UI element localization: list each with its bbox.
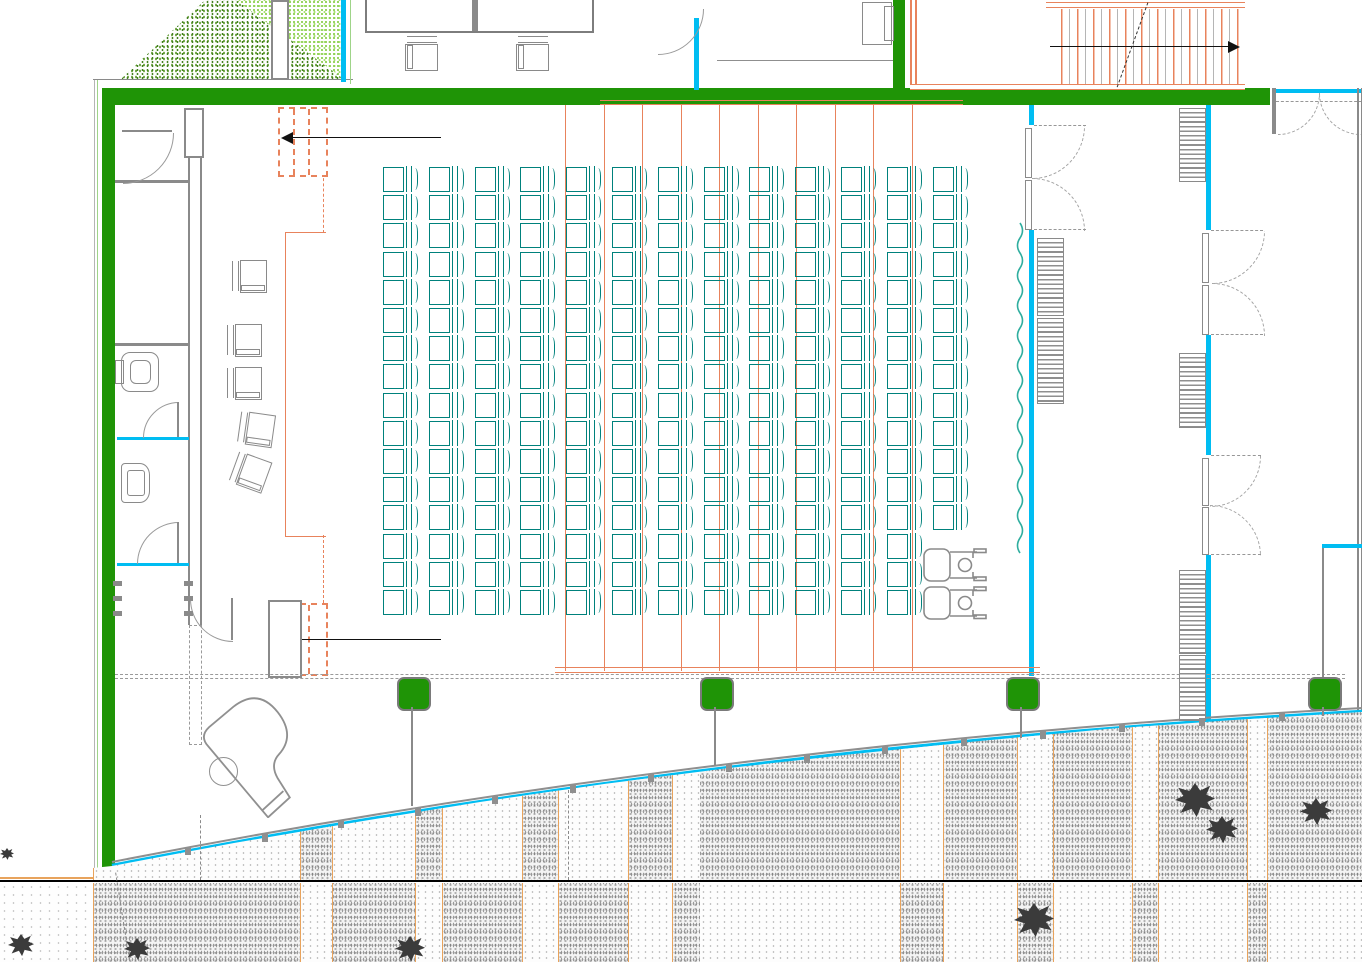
auditorium-seat xyxy=(749,504,785,531)
glass-wall-grass-edge xyxy=(341,0,346,82)
auditorium-seat xyxy=(612,194,648,221)
sidewalk-lower xyxy=(0,883,1362,962)
auditorium-seat xyxy=(887,335,923,362)
auditorium-seat xyxy=(795,279,831,306)
auditorium-seat xyxy=(933,392,969,419)
wall-right-outer xyxy=(1357,88,1359,712)
auditorium-seat xyxy=(887,561,923,588)
auditorium-seat xyxy=(658,222,694,249)
auditorium-seat xyxy=(658,561,694,588)
auditorium-seat xyxy=(841,251,877,278)
auditorium-seat xyxy=(841,420,877,447)
auditorium-seat xyxy=(429,561,465,588)
stair-arrow-line xyxy=(1050,46,1235,47)
auditorium-seat xyxy=(658,251,694,278)
pavement-band xyxy=(1017,700,1052,880)
stage-stair-top-arrowhead xyxy=(281,132,293,144)
auditorium-seat xyxy=(383,392,419,419)
auditorium-seat xyxy=(933,335,969,362)
auditorium-seat xyxy=(475,166,511,193)
auditorium-seat xyxy=(383,561,419,588)
pavement-divider xyxy=(900,883,901,962)
auditorium-seat xyxy=(658,476,694,503)
office-chair xyxy=(232,259,268,293)
office-chair xyxy=(237,410,277,449)
auditorium-seat xyxy=(429,307,465,334)
stair-stringer-left xyxy=(910,0,912,90)
pavement-divider xyxy=(522,883,523,962)
facade-mullion xyxy=(1279,713,1285,721)
pavement-divider xyxy=(1017,700,1018,880)
stair-arrow-head xyxy=(1228,41,1240,53)
radiator xyxy=(1037,318,1064,404)
stair-rail-bottom xyxy=(910,84,1245,90)
auditorium-seat xyxy=(520,392,556,419)
auditorium-seat xyxy=(566,279,602,306)
auditorium-seat xyxy=(841,307,877,334)
pavement-divider xyxy=(332,700,333,880)
auditorium-seat xyxy=(841,194,877,221)
auditorium-seat xyxy=(429,363,465,390)
wc-wall-pier xyxy=(184,108,204,158)
office-chair xyxy=(228,450,273,494)
auditorium-seat xyxy=(887,166,923,193)
auditorium-seat xyxy=(887,251,923,278)
pavement-divider xyxy=(558,700,559,880)
wc-wall-inner-2 xyxy=(200,108,202,625)
door-leaf-corridor-bottom xyxy=(231,598,233,640)
auditorium-seat xyxy=(887,222,923,249)
auditorium-seat xyxy=(383,222,419,249)
pavement-divider xyxy=(522,700,523,880)
facade-mullion xyxy=(415,808,421,816)
auditorium-seat xyxy=(475,279,511,306)
auditorium-seat xyxy=(612,307,648,334)
radiator xyxy=(1037,238,1064,316)
auditorium-seat xyxy=(566,420,602,447)
wall-pier-stage xyxy=(268,600,302,678)
pavement-divider xyxy=(1053,700,1054,880)
auditorium-seat xyxy=(383,335,419,362)
auditorium-seat xyxy=(658,335,694,362)
auditorium-seat xyxy=(887,279,923,306)
stage-stair-top-arrow xyxy=(286,137,441,138)
auditorium-seat xyxy=(704,307,740,334)
auditorium-seat xyxy=(566,222,602,249)
door-leaf-b1 xyxy=(1202,233,1209,283)
auditorium-seat xyxy=(612,279,648,306)
auditorium-seat xyxy=(749,476,785,503)
auditorium-seat xyxy=(749,307,785,334)
radiator xyxy=(1179,570,1206,654)
auditorium-seat xyxy=(566,194,602,221)
auditorium-seat xyxy=(933,222,969,249)
auditorium-seat xyxy=(566,561,602,588)
auditorium-seat xyxy=(429,533,465,560)
column-stem xyxy=(714,707,716,766)
pavement-divider xyxy=(558,883,559,962)
auditorium-seat xyxy=(704,589,740,616)
auditorium-seat xyxy=(475,448,511,475)
auditorium-seat xyxy=(749,589,785,616)
glass-wall-a-upper xyxy=(1029,105,1034,125)
pavement-divider xyxy=(900,700,901,880)
door-box-b2-bottom xyxy=(1211,554,1261,555)
wc-cross-wall-2 xyxy=(115,343,188,346)
wall-tick xyxy=(113,581,122,586)
pavement-divider xyxy=(672,700,673,880)
auditorium-seat xyxy=(887,589,923,616)
door-box-a-top xyxy=(1034,125,1086,126)
auditorium-seat xyxy=(749,166,785,193)
auditorium-seat xyxy=(383,279,419,306)
auditorium-seat xyxy=(475,251,511,278)
door-leaf-b3 xyxy=(1202,458,1209,506)
wall-pier-top xyxy=(271,0,289,80)
pavement-divider xyxy=(442,700,443,880)
site-line-vertical xyxy=(350,0,351,84)
facade-drop-dash-2 xyxy=(568,790,570,880)
auditorium-seat xyxy=(383,589,419,616)
auditorium-seat xyxy=(475,222,511,249)
beam-horizontal-top xyxy=(600,100,963,105)
stair-top-right xyxy=(910,0,1247,92)
piano-stool xyxy=(209,757,238,786)
facade-mullion xyxy=(1199,718,1205,726)
sidewalk-black-line xyxy=(0,880,1362,882)
auditorium-seat xyxy=(841,533,877,560)
auditorium-seat xyxy=(933,476,969,503)
stage-outline xyxy=(285,232,326,537)
door-box-b1-top xyxy=(1211,230,1263,231)
auditorium-seat xyxy=(566,251,602,278)
auditorium-seat xyxy=(933,504,969,531)
auditorium-seat xyxy=(704,194,740,221)
door-arc-top-hall xyxy=(612,0,704,55)
auditorium-seat xyxy=(475,476,511,503)
pavement-divider xyxy=(442,883,443,962)
auditorium-seat xyxy=(933,279,969,306)
auditorium-seat xyxy=(887,476,923,503)
wheelchair-symbol-1 xyxy=(922,545,990,585)
facade-mullion xyxy=(1119,724,1125,732)
floor-plan-canvas xyxy=(0,0,1362,962)
pavement-divider xyxy=(1017,883,1018,962)
stage-edge-dash-lower xyxy=(323,535,325,603)
door-leaf-a2 xyxy=(1025,180,1032,230)
pavement-divider xyxy=(1158,700,1159,880)
auditorium-seat xyxy=(612,420,648,447)
door-leaf-wc2 xyxy=(177,522,179,563)
meeting-table-divider xyxy=(472,0,478,31)
auditorium-seat xyxy=(749,335,785,362)
auditorium-seat xyxy=(612,476,648,503)
pavement-divider xyxy=(628,883,629,962)
auditorium-seat xyxy=(795,166,831,193)
pavement-divider xyxy=(1053,883,1054,962)
auditorium-seat xyxy=(520,533,556,560)
auditorium-seat xyxy=(841,561,877,588)
meeting-table xyxy=(365,0,594,33)
pavement-divider xyxy=(1267,883,1268,962)
pavement-band xyxy=(522,883,558,962)
door-leaf-corridor-top xyxy=(122,130,172,132)
pavement-divider xyxy=(93,883,94,962)
auditorium-seat xyxy=(475,533,511,560)
auditorium-seat xyxy=(841,392,877,419)
auditorium-seat xyxy=(704,561,740,588)
auditorium-seat xyxy=(933,363,969,390)
stage-stair-top-tread xyxy=(293,109,296,175)
auditorium-seat xyxy=(566,335,602,362)
auditorium-seat xyxy=(612,533,648,560)
auditorium-seat xyxy=(749,533,785,560)
auditorium-seat xyxy=(795,561,831,588)
auditorium-seat xyxy=(749,279,785,306)
auditorium-seat xyxy=(749,448,785,475)
auditorium-seat xyxy=(887,363,923,390)
auditorium-seat xyxy=(887,194,923,221)
auditorium-seat xyxy=(612,504,648,531)
stage-stair-bot-arrow xyxy=(286,639,441,640)
auditorium-seat xyxy=(795,533,831,560)
pavement-divider xyxy=(1267,700,1268,880)
auditorium-seat xyxy=(658,279,694,306)
auditorium-seat xyxy=(795,363,831,390)
wc-wall-inner-1 xyxy=(188,108,190,625)
auditorium-seat xyxy=(429,194,465,221)
auditorium-seat xyxy=(566,533,602,560)
auditorium-seat xyxy=(933,194,969,221)
facade-mullion xyxy=(492,796,498,804)
wall-stub-top-green xyxy=(893,0,905,88)
sidewalk-orange-edge xyxy=(0,877,93,879)
facade-mullion xyxy=(1040,731,1046,739)
auditorium-seat xyxy=(704,392,740,419)
tree-symbol xyxy=(0,848,14,860)
auditorium-seat xyxy=(429,476,465,503)
grand-piano xyxy=(200,688,315,818)
pavement-band xyxy=(628,883,672,962)
glass-wall-b-1 xyxy=(1206,105,1211,230)
auditorium-seat xyxy=(795,251,831,278)
auditorium-seat xyxy=(475,561,511,588)
auditorium-seat xyxy=(841,279,877,306)
pavement-divider xyxy=(1247,883,1248,962)
auditorium-seat xyxy=(658,307,694,334)
auditorium-seat xyxy=(841,589,877,616)
auditorium-seat xyxy=(429,279,465,306)
auditorium-seat xyxy=(749,222,785,249)
auditorium-seat xyxy=(429,448,465,475)
door-leaf-b4 xyxy=(1202,507,1209,555)
auditorium-seat xyxy=(887,392,923,419)
auditorium-seat xyxy=(841,363,877,390)
facade-mullion xyxy=(570,785,576,793)
green-column xyxy=(1006,677,1040,711)
pavement-band xyxy=(1132,700,1158,880)
auditorium-seat xyxy=(520,194,556,221)
green-column xyxy=(397,677,431,711)
auditorium-seat xyxy=(612,363,648,390)
toilet-tank xyxy=(115,360,124,384)
auditorium-seat xyxy=(429,420,465,447)
wheelchair-symbol-2 xyxy=(922,583,990,623)
auditorium-seat xyxy=(841,222,877,249)
facade-mullion xyxy=(338,820,344,828)
auditorium-seat xyxy=(749,561,785,588)
auditorium-seat xyxy=(704,420,740,447)
auditorium-seat xyxy=(658,448,694,475)
auditorium-seat xyxy=(658,392,694,419)
pavement-band xyxy=(522,700,558,880)
auditorium-seat xyxy=(520,363,556,390)
auditorium-seat xyxy=(566,392,602,419)
pavement-band xyxy=(628,700,672,880)
auditorium-seat xyxy=(475,307,511,334)
pavement-band xyxy=(1132,883,1158,962)
pavement-divider xyxy=(415,700,416,880)
auditorium-seat xyxy=(383,251,419,278)
auditorium-seat xyxy=(658,194,694,221)
auditorium-seat xyxy=(887,533,923,560)
auditorium-seat xyxy=(566,589,602,616)
auditorium-seat xyxy=(704,166,740,193)
auditorium-seat xyxy=(841,504,877,531)
office-chair xyxy=(227,366,263,400)
auditorium-seat xyxy=(795,222,831,249)
auditorium-seat xyxy=(566,363,602,390)
wall-tick xyxy=(184,581,193,586)
auditorium-seat xyxy=(383,420,419,447)
auditorium-seat xyxy=(520,279,556,306)
office-chair xyxy=(405,36,439,72)
auditorium-seat xyxy=(612,561,648,588)
auditorium-seat xyxy=(841,476,877,503)
pavement-divider xyxy=(332,883,333,962)
auditorium-seat xyxy=(383,194,419,221)
site-line-left-gray xyxy=(94,80,95,878)
auditorium-seat xyxy=(383,448,419,475)
door-arc-b1-upper xyxy=(1159,178,1265,284)
auditorium-seat xyxy=(429,504,465,531)
auditorium-seat xyxy=(795,504,831,531)
auditorium-seat xyxy=(520,448,556,475)
auditorium-seat xyxy=(429,392,465,419)
auditorium-seat xyxy=(475,392,511,419)
toilet-bowl xyxy=(130,360,151,384)
green-column xyxy=(700,677,734,711)
glass-corner-br xyxy=(1322,544,1362,548)
wall-tick xyxy=(184,611,193,616)
auditorium-seat xyxy=(795,307,831,334)
auditorium-seat xyxy=(841,448,877,475)
door-leaf-wc1 xyxy=(177,402,179,437)
auditorium-seat xyxy=(383,504,419,531)
auditorium-seat xyxy=(658,166,694,193)
auditorium-seat xyxy=(704,533,740,560)
green-column xyxy=(1308,677,1342,711)
auditorium-seat xyxy=(658,363,694,390)
auditorium-seat xyxy=(520,420,556,447)
auditorium-seat xyxy=(612,166,648,193)
auditorium-seat xyxy=(520,166,556,193)
door-box-b1-bottom xyxy=(1211,334,1263,335)
auditorium-seat xyxy=(520,476,556,503)
auditorium-seat xyxy=(795,476,831,503)
auditorium-seat xyxy=(795,589,831,616)
door-arc-corridor-bottom xyxy=(190,556,276,642)
pavement-divider xyxy=(1132,883,1133,962)
pavement-band xyxy=(415,700,442,880)
auditorium-seat xyxy=(566,166,602,193)
column-stem xyxy=(1322,707,1324,716)
pavement-band xyxy=(300,883,332,962)
auditorium-seat xyxy=(704,504,740,531)
auditorium-seat xyxy=(841,166,877,193)
auditorium-seat xyxy=(795,392,831,419)
auditorium-seat xyxy=(520,504,556,531)
auditorium-seat xyxy=(749,392,785,419)
auditorium-seat xyxy=(795,448,831,475)
glass-top-right xyxy=(1276,89,1362,93)
auditorium-seat xyxy=(383,307,419,334)
beam-horizontal-bottom xyxy=(555,667,1040,673)
pavement-divider xyxy=(1158,883,1159,962)
door-box-a-bottom xyxy=(1034,229,1086,230)
office-chair xyxy=(516,36,550,72)
auditorium-seat xyxy=(749,251,785,278)
column-stem xyxy=(1020,707,1022,738)
auditorium-seat xyxy=(887,307,923,334)
auditorium-seat xyxy=(704,279,740,306)
column-stem xyxy=(1322,548,1324,677)
wall-left-green xyxy=(102,88,115,870)
door-leaf-a1 xyxy=(1025,128,1032,178)
auditorium-seat xyxy=(704,363,740,390)
auditorium-seat xyxy=(429,166,465,193)
facade-drop-dash-1 xyxy=(200,815,202,880)
facade-mullion xyxy=(726,764,732,772)
pavement-band xyxy=(1247,700,1267,880)
radiator xyxy=(1179,108,1206,182)
auditorium-seat xyxy=(520,222,556,249)
wall-tick xyxy=(113,596,122,601)
auditorium-seat xyxy=(475,335,511,362)
auditorium-seat xyxy=(933,166,969,193)
auditorium-seat xyxy=(749,420,785,447)
grass-patch xyxy=(120,0,345,80)
office-desk-panel xyxy=(884,6,894,41)
auditorium-seat xyxy=(887,420,923,447)
auditorium-seat xyxy=(795,420,831,447)
auditorium-seat xyxy=(704,448,740,475)
site-line-left-green xyxy=(97,80,98,878)
auditorium-seat xyxy=(933,251,969,278)
auditorium-seat xyxy=(795,194,831,221)
glass-wall-b-3 xyxy=(1206,555,1211,730)
auditorium-seat xyxy=(612,392,648,419)
auditorium-seat xyxy=(658,420,694,447)
auditorium-seat xyxy=(475,363,511,390)
auditorium-seat xyxy=(566,476,602,503)
door-leaf-b2 xyxy=(1202,285,1209,335)
glass-wall-a-lower xyxy=(1029,230,1034,676)
auditorium-seat xyxy=(429,251,465,278)
facade-mullion xyxy=(262,834,268,842)
auditorium-seat xyxy=(749,363,785,390)
radiator xyxy=(1179,655,1206,721)
